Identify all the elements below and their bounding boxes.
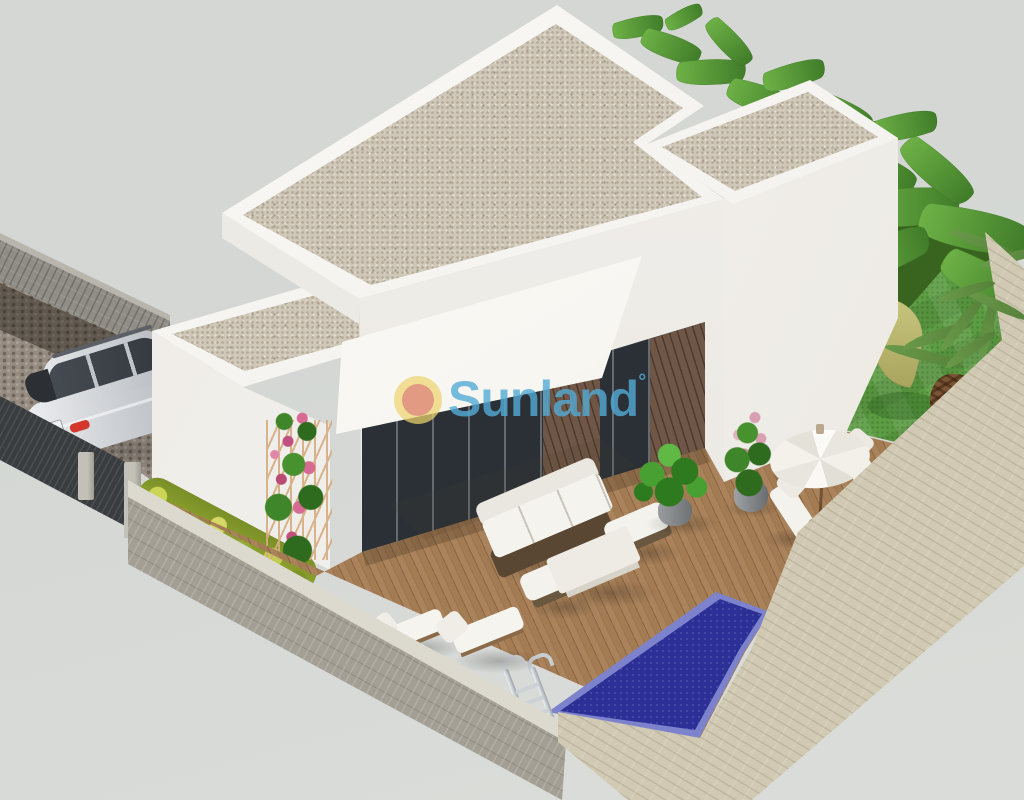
parasol-finial <box>816 424 824 434</box>
watermark-brand: Sunland° <box>448 370 645 428</box>
fence-post <box>78 452 94 500</box>
watermark-registered-mark: ° <box>638 371 645 393</box>
banana-leaf <box>662 0 705 36</box>
villa-3d-render: Sunland° <box>0 0 1024 800</box>
sunland-logo-inner-icon <box>402 384 434 416</box>
watermark-brand-text: Sunland <box>448 371 638 427</box>
ladder-rung <box>515 682 539 694</box>
potted-plant <box>628 436 714 516</box>
watermark: Sunland° <box>394 368 694 432</box>
